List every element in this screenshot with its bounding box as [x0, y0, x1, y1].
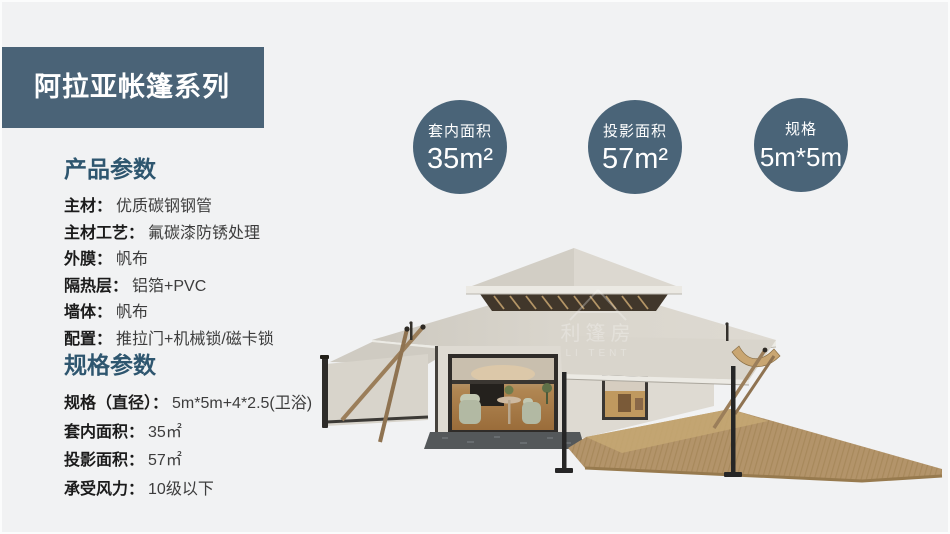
product-params-heading: 产品参数	[64, 150, 274, 184]
param-row: 主材工艺：氟碳漆防锈处理	[64, 221, 274, 248]
param-row: 套内面积：35㎡	[64, 419, 312, 448]
product-params-list: 主材：优质碳钢钢管 主材工艺：氟碳漆防锈处理 外膜：帆布 隔热层：铝箔+PVC …	[64, 194, 274, 353]
spec-params-list: 规格（直径）：5m*5m+4*2.5(卫浴) 套内面积：35㎡ 投影面积：57㎡…	[64, 390, 312, 504]
series-title-banner: 阿拉亚帐篷系列	[2, 47, 264, 128]
param-row: 规格（直径）：5m*5m+4*2.5(卫浴)	[64, 390, 312, 419]
tent-illustration: 利篷房 LI TENT	[302, 232, 950, 522]
spec-params-heading: 规格参数	[64, 346, 312, 380]
param-row: 承受风力：10级以下	[64, 476, 312, 505]
param-row: 墙体：帆布	[64, 300, 274, 327]
tent-top-roof	[466, 248, 682, 311]
spec-params-section: 规格参数 规格（直径）：5m*5m+4*2.5(卫浴) 套内面积：35㎡ 投影面…	[64, 346, 312, 504]
svg-text:利篷房: 利篷房	[561, 322, 636, 345]
param-row: 投影面积：57㎡	[64, 447, 312, 476]
param-row: 外膜：帆布	[64, 247, 274, 274]
badge-size: 规格 5m*5m	[754, 98, 848, 192]
badge-interior-area: 套内面积 35m²	[413, 100, 507, 194]
series-title: 阿拉亚帐篷系列	[34, 72, 230, 102]
tent-window-main	[448, 354, 558, 434]
product-params-section: 产品参数 主材：优质碳钢钢管 主材工艺：氟碳漆防锈处理 外膜：帆布 隔热层：铝箔…	[64, 150, 274, 353]
tent-stone-base	[424, 432, 585, 449]
svg-text:LI TENT: LI TENT	[565, 348, 630, 359]
badge-projection-area: 投影面积 57m²	[588, 100, 682, 194]
param-row: 主材：优质碳钢钢管	[64, 194, 274, 221]
param-row: 隔热层：铝箔+PVC	[64, 274, 274, 301]
